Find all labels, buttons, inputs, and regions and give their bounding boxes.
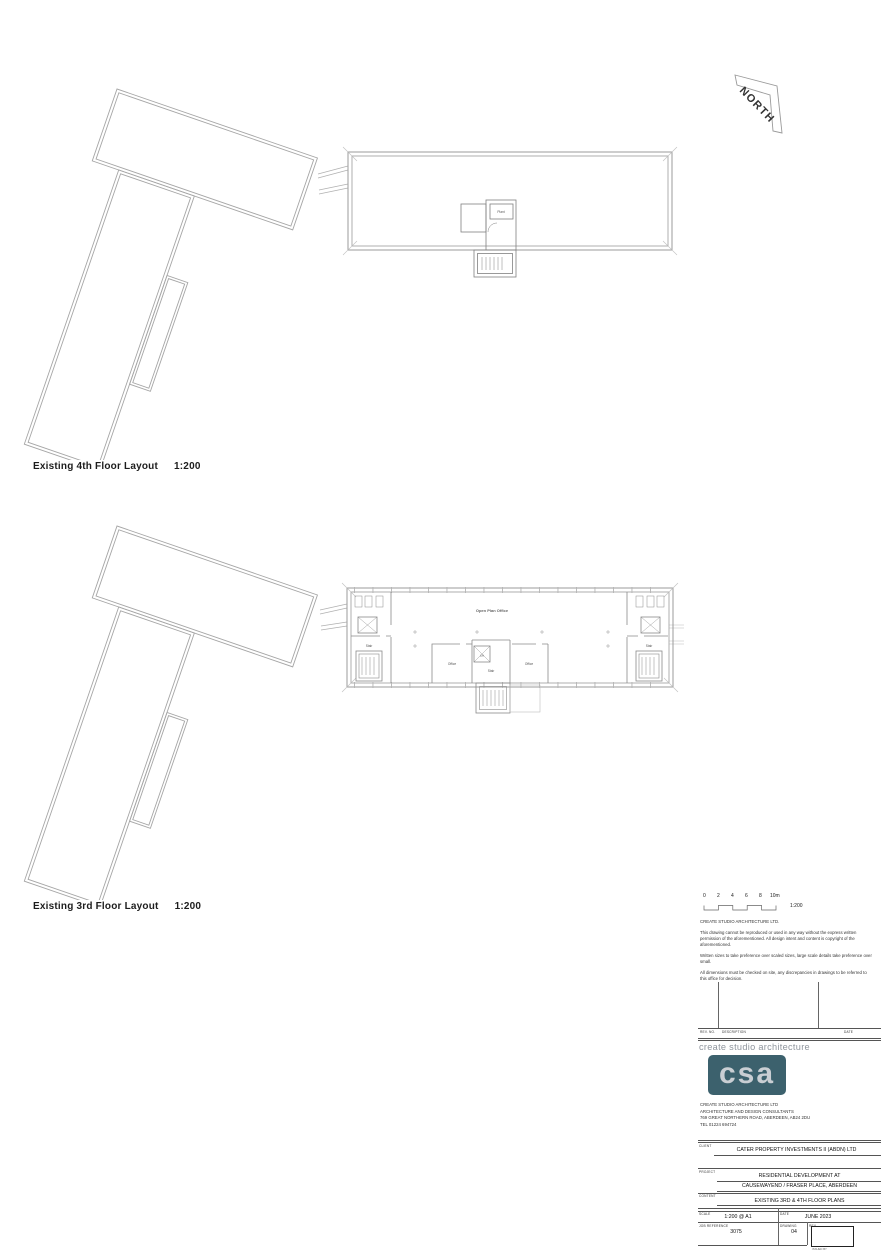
scalebar-tick: 6 — [745, 893, 748, 899]
core-right — [627, 592, 668, 683]
caption-lower-title: Existing 3rd Floor Layout — [33, 901, 159, 912]
notes-para: Written sizes to take preference over sc… — [700, 953, 872, 965]
field-rule — [698, 1140, 881, 1141]
room-label-plant: Plant — [497, 210, 504, 214]
notes: CREATE STUDIO ARCHITECTURE LTD. This dra… — [700, 919, 872, 987]
field-underline — [717, 1205, 881, 1206]
company-info: CREATE STUDIO ARCHITECTURE LTD ARCHITECT… — [700, 1102, 810, 1129]
rev-box — [811, 1226, 854, 1247]
company-tel: TEL 01224 694724 — [700, 1122, 810, 1129]
scalebar-tick: 0 — [703, 893, 706, 899]
drawing-sheet: NORTH Plant — [0, 0, 886, 1253]
room-label-lift: Lift — [480, 654, 484, 658]
client-value: CATER PROPERTY INVESTMENTS II (ABDN) LTD — [712, 1147, 881, 1153]
csa-logo: csa — [708, 1055, 786, 1095]
date-value: JUNE 2023 — [782, 1214, 854, 1220]
company-tagline: ARCHITECTURE AND DESIGN CONSULTANTS — [700, 1109, 810, 1116]
room-label-open-plan: Open Plan Office — [476, 608, 509, 613]
scalebar-ratio: 1:200 — [790, 903, 803, 909]
scalebar-tick: 4 — [731, 893, 734, 899]
core-upper — [461, 200, 516, 277]
field-rule — [698, 1168, 881, 1169]
revision-table-divider — [718, 982, 719, 1028]
field-rule — [698, 1208, 881, 1209]
field-underline — [717, 1191, 881, 1192]
drawing-value: 04 — [782, 1229, 806, 1235]
plan-upper: Plant — [20, 70, 690, 460]
project-line1: RESIDENTIAL DEVELOPMENT AT — [718, 1173, 881, 1179]
room-label-stair-center: Stair — [488, 669, 495, 673]
revision-table-rule — [698, 1038, 881, 1039]
room-label-office-right: Office — [525, 662, 533, 666]
main-building-outline-upper — [348, 152, 672, 250]
field-underline — [714, 1155, 881, 1156]
revision-col-desc: DESCRIPTION — [722, 1030, 746, 1034]
job-value: 3075 — [706, 1229, 766, 1235]
field-underline — [717, 1181, 881, 1182]
revision-col-date: DATE — [844, 1030, 853, 1034]
field-rule — [698, 1211, 881, 1212]
link-bridge-lower — [320, 604, 347, 630]
revision-col-rev: REV. NO. — [700, 1030, 715, 1034]
company-name: CREATE STUDIO ARCHITECTURE LTD — [700, 1102, 810, 1109]
caption-upper: Existing 4th Floor Layout1:200 — [33, 461, 201, 472]
scalebar-bar — [702, 902, 782, 912]
room-label-stair-left: Stair — [366, 644, 373, 648]
scale-value: 1:200 @ A1 — [706, 1214, 770, 1220]
core-center — [432, 640, 548, 713]
csa-logo-text: csa — [719, 1059, 775, 1091]
field-divider — [778, 1222, 779, 1245]
notes-para: This drawing cannot be reproduced or use… — [700, 930, 872, 948]
room-label-stair-right: Stair — [646, 644, 653, 648]
field-divider — [778, 1208, 779, 1222]
corner-ticks-upper — [343, 147, 677, 255]
job-label: JOB REFERENCE — [699, 1224, 728, 1228]
caption-lower: Existing 3rd Floor Layout1:200 — [33, 901, 201, 912]
project-label: PROJECT — [699, 1170, 715, 1174]
field-divider — [807, 1222, 808, 1245]
room-label-office-left: Office — [448, 662, 456, 666]
caption-lower-scale: 1:200 — [175, 901, 202, 912]
title-block: 0 2 4 6 8 10m 1:200 CREATE STUDIO ARCHIT… — [698, 893, 881, 1253]
right-stubs-lower — [669, 625, 684, 644]
column-grid-marks — [413, 630, 610, 648]
drawing-label: DRAWING — [780, 1224, 797, 1228]
project-line2: CAUSEWAYEND / FRASER PLACE, ABERDEEN — [718, 1183, 881, 1189]
brand-wordmark: create studio architecture — [699, 1042, 810, 1052]
link-bridge-upper — [318, 166, 348, 194]
adjacent-building-outline-lower — [20, 526, 317, 900]
field-rule — [698, 1193, 881, 1194]
field-rule — [698, 1142, 881, 1143]
client-label: CLIENT — [699, 1144, 712, 1148]
core-left — [351, 592, 391, 683]
content-label: CONTENT — [699, 1194, 716, 1198]
caption-upper-title: Existing 4th Floor Layout — [33, 461, 158, 472]
adjacent-building-outline-upper — [20, 89, 317, 460]
scalebar-tick: 10m — [770, 893, 780, 899]
notes-heading: CREATE STUDIO ARCHITECTURE LTD. — [700, 919, 872, 925]
plan-lower: Stair Stair Op — [20, 505, 690, 900]
field-rule — [698, 1245, 807, 1246]
content-value: EXISTING 3RD & 4TH FLOOR PLANS — [718, 1198, 881, 1204]
caption-upper-scale: 1:200 — [174, 461, 201, 472]
notes-para: All dimensions must be checked on site, … — [700, 970, 872, 982]
scalebar-tick: 8 — [759, 893, 762, 899]
revision-table-divider — [818, 982, 819, 1028]
company-address: 769 GREAT NORTHERN ROAD, ABERDEEN, AB24 … — [700, 1115, 810, 1122]
issued-note: ISSUED BY — [812, 1247, 827, 1251]
scalebar-tick: 2 — [717, 893, 720, 899]
revision-table-rule — [698, 1040, 881, 1041]
north-arrow: NORTH — [712, 55, 812, 155]
